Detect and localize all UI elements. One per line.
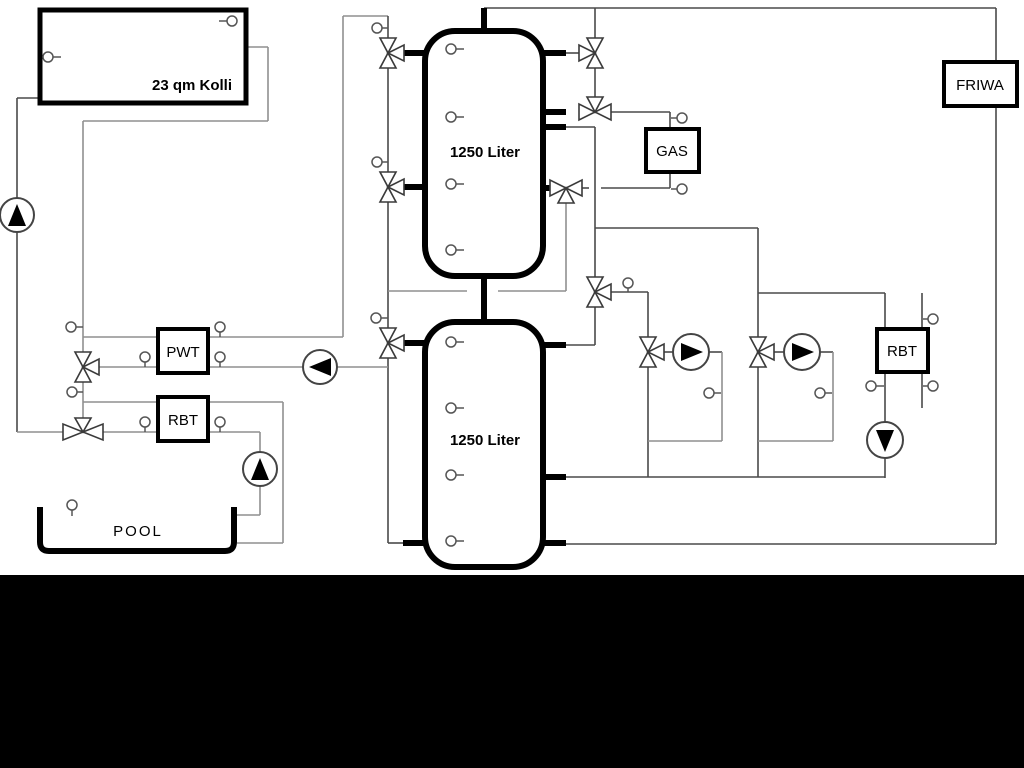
buffer-tank-bottom-label: 1250 Liter xyxy=(450,432,520,449)
collector-box: 23 qm Kolli xyxy=(40,10,246,103)
three-way-valve-icon xyxy=(579,38,603,68)
gas-boiler-box: GAS xyxy=(646,129,699,172)
sensor-icon xyxy=(140,352,150,367)
pool-label: POOL xyxy=(113,523,163,540)
three-way-valve-icon xyxy=(75,352,99,382)
sensor-icon xyxy=(372,157,388,167)
three-way-valve-icon xyxy=(380,38,404,68)
sensor-icon xyxy=(215,322,225,337)
sensor-icon xyxy=(866,381,884,391)
three-way-valve-icon xyxy=(63,418,103,440)
pwt-box: PWT xyxy=(158,329,208,373)
pwt-label: PWT xyxy=(166,344,199,361)
pool-pump-icon xyxy=(243,452,277,486)
sensor-icon xyxy=(67,387,83,397)
sensor-icon xyxy=(923,381,938,391)
three-way-valve-icon xyxy=(380,172,404,202)
sensor-icon xyxy=(704,388,721,398)
gas-boiler-label: GAS xyxy=(656,143,688,160)
buffer-tank-top: 1250 Liter xyxy=(425,31,543,276)
bottom-black-bar xyxy=(0,575,1024,768)
rbt-left-label: RBT xyxy=(168,412,198,429)
sensor-icon xyxy=(923,314,938,324)
buffer-tank-bottom: 1250 Liter xyxy=(425,322,543,567)
friwa-label: FRIWA xyxy=(956,77,1004,94)
three-way-valve-icon xyxy=(640,337,664,367)
sensor-icon xyxy=(623,278,633,292)
heating-circuit-1-pump-icon xyxy=(673,334,709,370)
sensor-icon xyxy=(371,313,388,323)
collector-label: 23 qm Kolli xyxy=(152,77,232,94)
three-way-valve-icon xyxy=(587,277,611,307)
rbt-pump-icon xyxy=(867,422,903,458)
pwt-pump-icon xyxy=(303,350,337,384)
heating-circuit-2-pump-icon xyxy=(784,334,820,370)
schematic-page: 23 qm Kolli 1250 Liter 1250 Liter GAS FR… xyxy=(0,0,1024,768)
sensor-icon xyxy=(140,417,150,432)
sensor-icon xyxy=(215,352,225,367)
three-way-valve-icon xyxy=(550,180,582,203)
rbt-right-label: RBT xyxy=(887,343,917,360)
buffer-tank-top-label: 1250 Liter xyxy=(450,144,520,161)
rbt-right-box: RBT xyxy=(877,329,928,372)
three-way-valve-icon xyxy=(579,97,611,120)
sensor-icon xyxy=(372,23,388,33)
sensor-icon xyxy=(671,113,687,123)
solar-pump-icon xyxy=(0,198,34,232)
sensor-icon xyxy=(67,500,77,516)
sensor-icon xyxy=(815,388,832,398)
friwa-box: FRIWA xyxy=(944,62,1017,106)
sensor-icon xyxy=(671,184,687,194)
rbt-left-box: RBT xyxy=(158,397,208,441)
sensor-icon xyxy=(66,322,83,332)
pool-basin: POOL xyxy=(40,507,234,551)
three-way-valve-icon xyxy=(380,328,404,358)
three-way-valve-icon xyxy=(750,337,774,367)
sensor-icon xyxy=(215,417,225,432)
